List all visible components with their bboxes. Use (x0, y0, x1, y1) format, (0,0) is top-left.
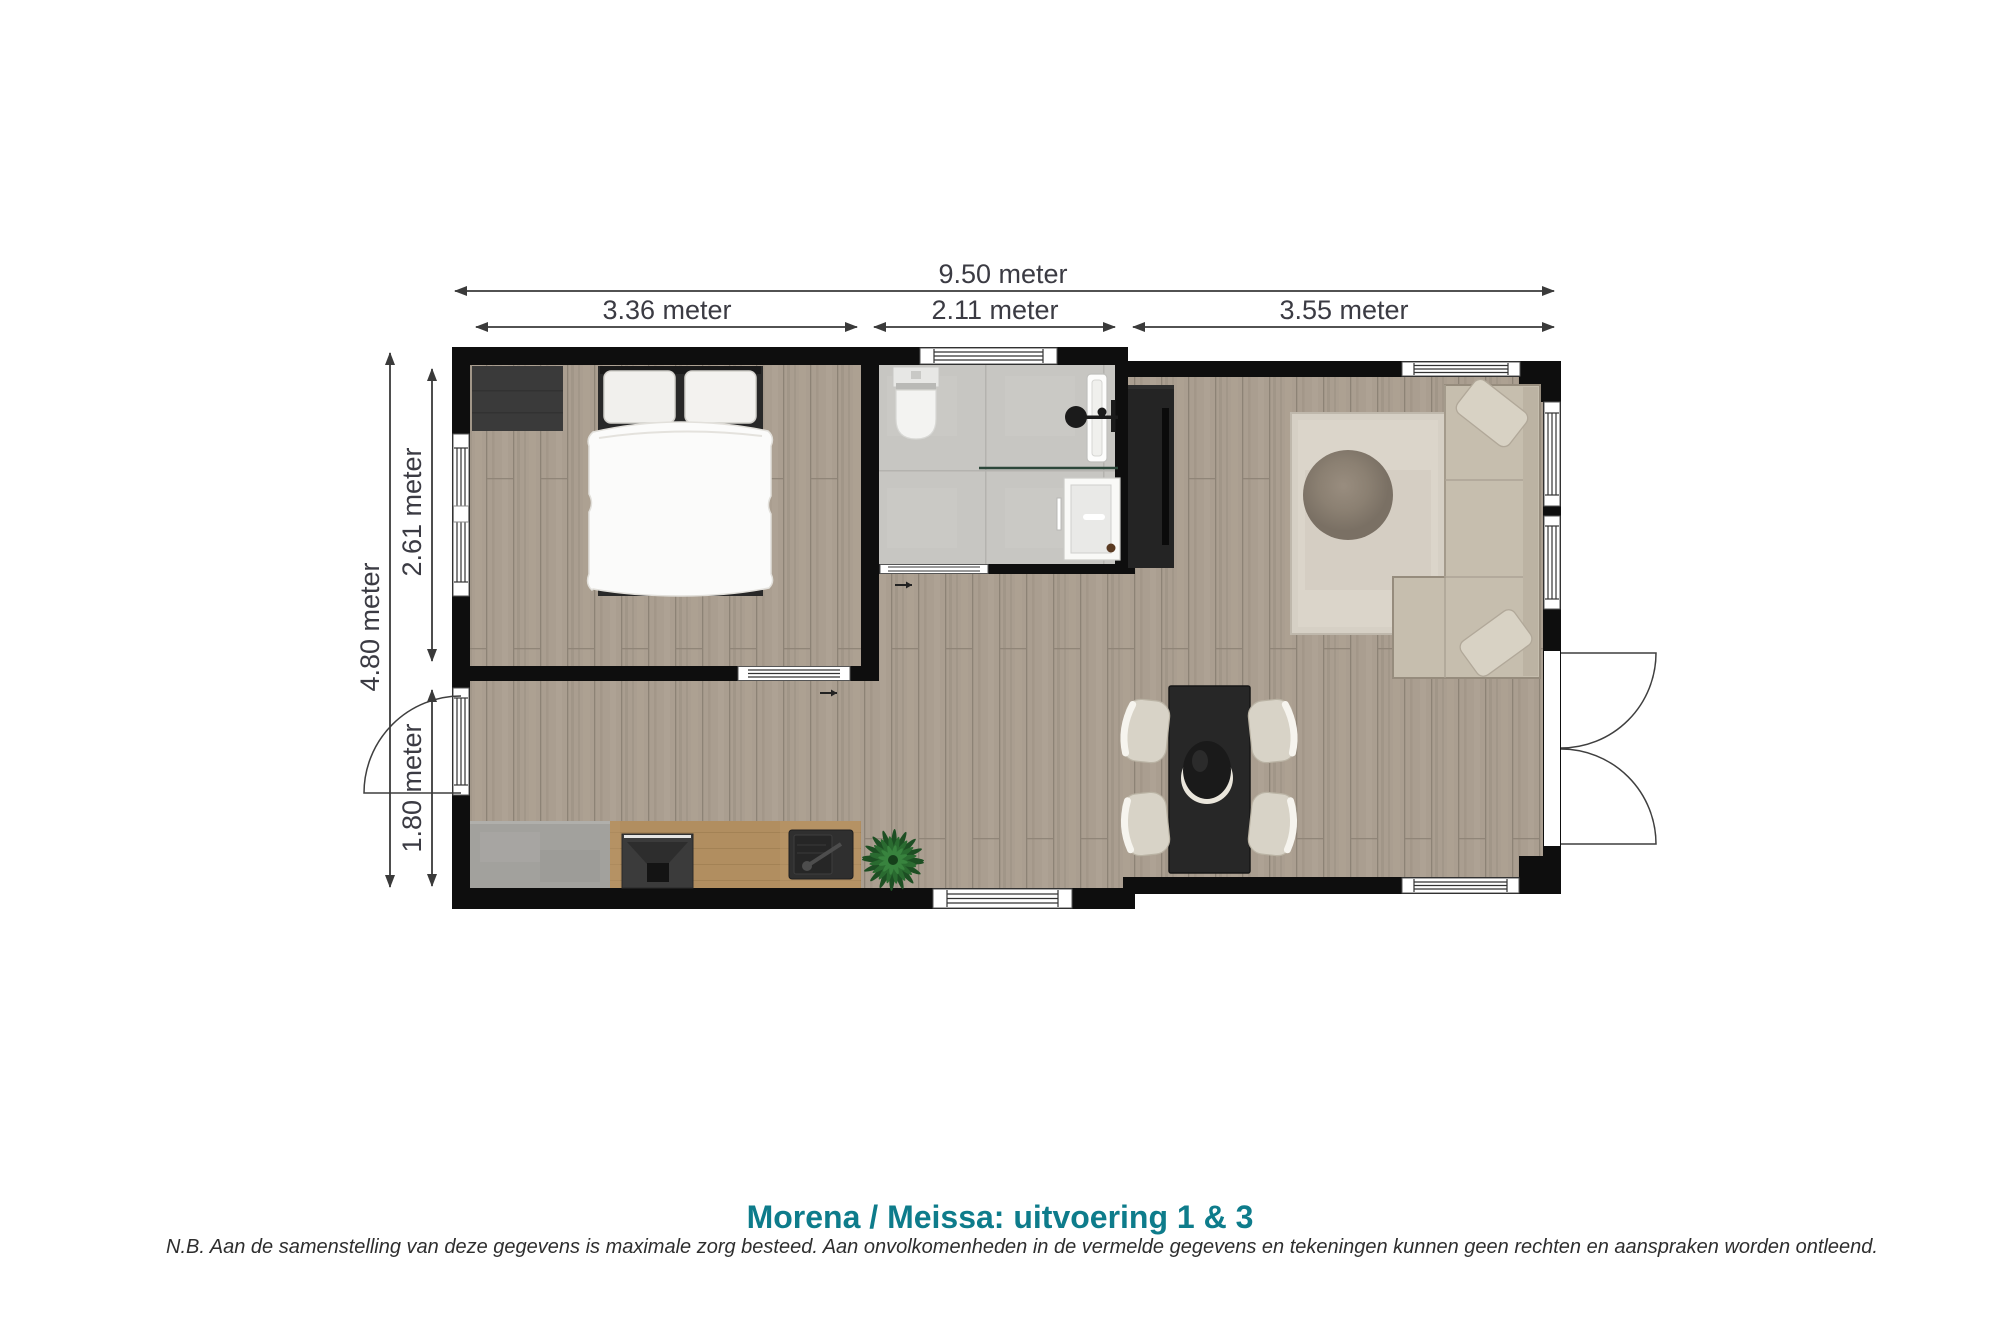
svg-text:4.80 meter: 4.80 meter (355, 562, 385, 691)
svg-text:9.50 meter: 9.50 meter (938, 259, 1067, 289)
svg-text:2.11 meter: 2.11 meter (931, 295, 1058, 325)
svg-text:3.55 meter: 3.55 meter (1279, 295, 1408, 325)
svg-text:1.80 meter: 1.80 meter (397, 723, 427, 852)
svg-text:2.61 meter: 2.61 meter (397, 447, 427, 576)
svg-text:N.B. Aan de samenstelling van: N.B. Aan de samenstelling van deze gegev… (166, 1236, 1878, 1258)
svg-text:3.36 meter: 3.36 meter (602, 295, 731, 325)
svg-text:Morena / Meissa: uitvoering 1: Morena / Meissa: uitvoering 1 & 3 (747, 1199, 1254, 1235)
